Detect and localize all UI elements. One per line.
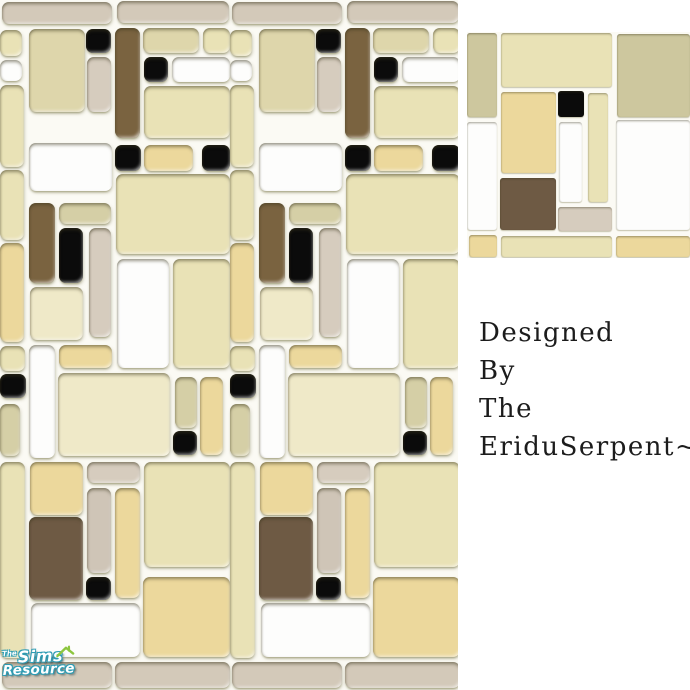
mosaic-tile [144,57,168,82]
mosaic-tile [117,1,229,23]
mosaic-tile [289,203,341,224]
mosaic-tile [317,488,341,573]
mosaic-tile [115,28,140,138]
mosaic-tile [289,345,342,368]
mosaic-tile [115,145,141,171]
mosaic-tile [200,377,223,455]
mosaic-tile [316,29,341,53]
mosaic-tile [500,178,556,230]
mosaic-tile [202,145,230,171]
mosaic-tile [173,431,197,455]
mosaic-tile [29,517,83,600]
mosaic-tile [29,203,55,283]
mosaic-tile [617,34,690,117]
mosaic-tile [467,33,497,117]
mosaic-tile [232,662,342,688]
mosaic-tile [0,170,24,240]
mosaic-tile [143,577,230,657]
mosaic-tile [0,404,20,456]
mosaic-tile [87,462,140,483]
mosaic-tile [2,2,112,24]
mosaic-tile [0,60,22,81]
mosaic-tile [230,85,254,167]
mosaic-tile [172,57,230,82]
mosaic-tile [374,462,458,567]
mosaic-tile [115,662,230,688]
mosaic-tile [230,462,255,658]
mosaic-tile [86,577,111,600]
mosaic-tile [173,259,230,368]
mosaic-tile [501,92,556,173]
mosaic-tile [59,345,112,368]
mosaic-tile [374,145,423,171]
tsr-texture-preview-page: Designed By The EriduSerpent~ TheSims Re… [0,0,690,690]
mosaic-tile [405,377,427,428]
mosaic-tile [29,29,85,112]
credit-line-3: The [479,390,690,428]
tsr-logo: TheSims Resource [2,647,83,678]
mosaic-tile [347,1,458,23]
mosaic-tile [30,462,83,515]
mosaic-tile [59,203,111,224]
mosaic-tile [347,259,399,368]
mosaic-tile [259,29,315,112]
mosaic-tile [616,236,690,257]
mosaic-tile [0,462,25,658]
mosaic-tile [89,228,111,337]
mosaic-tile [0,346,25,371]
mosaic-tile [59,228,83,283]
mosaic-tile [346,174,458,254]
mosaic-tile [230,346,255,371]
mosaic-tile [144,145,193,171]
mosaic-tile [345,28,370,138]
mosaic-tile [175,377,197,428]
credit-line-1: Designed [479,314,690,352]
mosaic-tile [403,431,427,455]
mosaic-tile [230,374,256,398]
credit-line-2: By [479,352,690,390]
mosaic-tile [588,93,608,202]
mosaic-tile [29,143,112,191]
mosaic-tile [317,57,341,112]
mosaic-tile [230,404,250,456]
mosaic-tile [29,345,55,458]
mosaic-tile [0,374,26,398]
mosaic-tile [259,203,285,283]
mosaic-tile [259,517,313,600]
mosaic-tile [373,577,458,657]
mosaic-tile [374,86,458,138]
mosaic-tile [143,28,199,53]
mosaic-tile [144,462,230,567]
mosaic-tile [144,86,230,138]
credit-line-4: EriduSerpent~ [479,428,690,466]
mosaic-tile [345,662,458,688]
tsr-logo-line1: TheSims [2,647,82,664]
mosaic-tile [559,122,582,202]
mosaic-tile [501,236,612,257]
mosaic-tile [319,228,341,337]
mosaic-tile [260,287,313,340]
mosaic-tile [260,462,313,515]
mosaic-tile [345,145,371,171]
mosaic-tile [616,120,690,230]
mosaic-tile [289,228,313,283]
mosaic-tile [87,57,111,112]
mosaic-tile [345,488,370,598]
mosaic-tile [30,287,83,340]
mosaic-tile [86,29,111,53]
mosaic-tile [432,145,458,171]
mosaic-tile [373,28,429,53]
mosaic-tile [316,577,341,600]
mosaic-tile [558,207,612,231]
mosaic-tile [558,91,584,117]
mosaic-tile [469,235,497,257]
mosaic-tile [288,373,400,456]
mosaic-tile [433,28,458,53]
mosaic-tile [203,28,230,53]
mosaic-tile [230,243,254,342]
mosaic-tile [259,345,285,458]
mosaic-tile [501,33,612,87]
mosaic-tile [317,462,370,483]
mosaic-tile [116,174,230,254]
mosaic-tile [374,57,398,82]
mosaic-tile [430,377,453,455]
mosaic-tile [0,30,22,56]
mosaic-tile [230,30,252,56]
mosaic-tile [232,2,342,24]
mosaic-tile [261,603,370,657]
wallpaper-pattern-swatch [467,32,690,258]
mosaic-tile [117,259,169,368]
mosaic-tile [115,488,140,598]
roof-icon [56,644,76,658]
mosaic-tile [87,488,111,573]
tsr-logo-the: The [2,649,17,658]
mosaic-tile [467,122,497,230]
credit-text: Designed By The EriduSerpent~ [479,314,690,466]
mosaic-tile [0,243,24,342]
mosaic-tile [230,170,254,240]
mosaic-tile [58,373,170,456]
mosaic-tile [403,259,458,368]
wallpaper-pattern-large [0,0,458,690]
mosaic-tile [0,85,24,167]
mosaic-tile [402,57,458,82]
mosaic-tile [259,143,342,191]
mosaic-tile [230,60,252,81]
